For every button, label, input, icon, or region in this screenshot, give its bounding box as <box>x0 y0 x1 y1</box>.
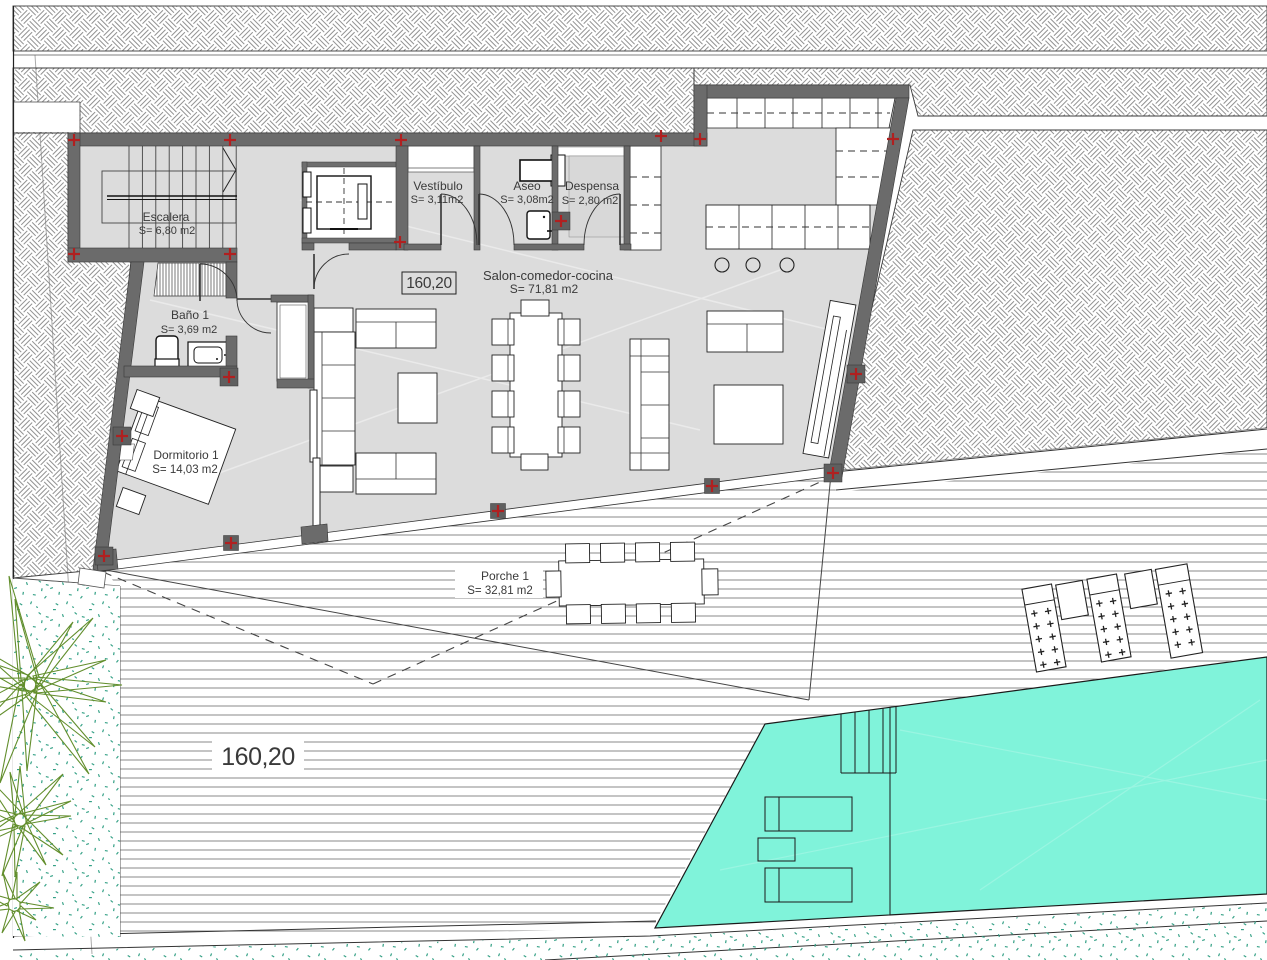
svg-text:S= 3,08m2: S= 3,08m2 <box>500 194 554 206</box>
svg-text:Salon-comedor-cocina: Salon-comedor-cocina <box>483 268 614 283</box>
svg-text:Despensa: Despensa <box>565 179 619 193</box>
svg-text:Porche 1: Porche 1 <box>481 569 529 583</box>
svg-text:S= 3,69 m2: S= 3,69 m2 <box>161 324 218 336</box>
svg-text:S= 32,81 m2: S= 32,81 m2 <box>467 585 533 597</box>
svg-text:Aseo: Aseo <box>513 179 541 193</box>
svg-text:S= 71,81 m2: S= 71,81 m2 <box>510 282 579 296</box>
svg-text:Baño 1: Baño 1 <box>171 308 209 322</box>
svg-text:S= 6,80 m2: S= 6,80 m2 <box>139 225 196 237</box>
svg-text:Dormitorio 1: Dormitorio 1 <box>153 448 219 462</box>
svg-text:160,20: 160,20 <box>221 743 294 771</box>
svg-text:Escalera: Escalera <box>143 210 190 224</box>
svg-text:S= 14,03 m2: S= 14,03 m2 <box>152 464 218 476</box>
svg-text:Vestíbulo: Vestíbulo <box>413 179 463 193</box>
svg-text:160,20: 160,20 <box>406 275 452 292</box>
svg-text:S= 2,80 m2: S= 2,80 m2 <box>562 195 619 207</box>
svg-text:S= 3,11m2: S= 3,11m2 <box>411 194 464 206</box>
